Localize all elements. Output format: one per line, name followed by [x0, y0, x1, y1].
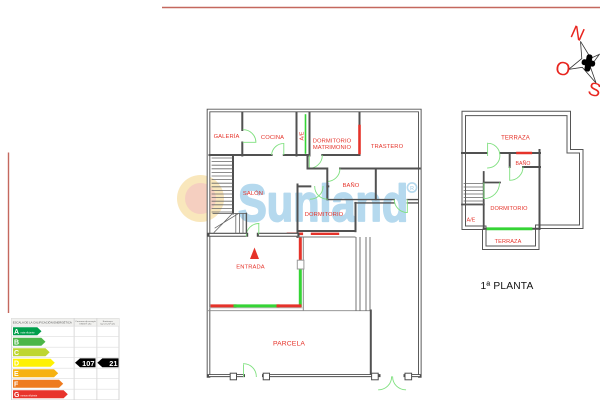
- svg-text:F: F: [14, 382, 19, 389]
- svg-text:A/E: A/E: [300, 131, 306, 140]
- svg-text:A/E: A/E: [467, 218, 476, 224]
- svg-text:COCINA: COCINA: [261, 135, 284, 141]
- svg-text:Sunland: Sunland: [238, 175, 408, 233]
- svg-text:ESCALA DE LA CALIFICACIÓN ENER: ESCALA DE LA CALIFICACIÓN ENERGÉTICA: [13, 319, 72, 324]
- svg-text:C: C: [14, 350, 19, 357]
- svg-text:107: 107: [82, 359, 94, 368]
- svg-text:kg CO₂/m² año: kg CO₂/m² año: [101, 322, 116, 325]
- svg-text:B: B: [14, 340, 19, 347]
- svg-text:E: E: [14, 371, 19, 378]
- svg-text:1ª PLANTA: 1ª PLANTA: [481, 281, 534, 292]
- svg-text:A: A: [14, 329, 19, 336]
- svg-text:DORMITORIO: DORMITORIO: [490, 206, 528, 212]
- svg-text:Consumo de energía: Consumo de energía: [75, 320, 96, 323]
- svg-text:GALERÍA: GALERÍA: [214, 133, 240, 140]
- svg-text:SALÓN: SALÓN: [243, 190, 263, 197]
- svg-text:D: D: [14, 361, 19, 368]
- svg-text:TERRAZA: TERRAZA: [501, 135, 530, 141]
- svg-text:TRASTERO: TRASTERO: [371, 144, 404, 150]
- svg-text:TERRAZA: TERRAZA: [495, 239, 522, 245]
- svg-text:menos eficiente: menos eficiente: [21, 395, 38, 398]
- svg-text:kWh/m² año: kWh/m² año: [80, 322, 93, 325]
- svg-text:BAÑO: BAÑO: [515, 160, 530, 167]
- svg-text:DORMITORIO: DORMITORIO: [313, 139, 352, 145]
- svg-text:más eficiente: más eficiente: [21, 332, 36, 335]
- svg-text:PARCELA: PARCELA: [273, 340, 305, 347]
- svg-text:ENTRADA: ENTRADA: [236, 264, 264, 270]
- svg-text:BAÑO: BAÑO: [343, 182, 360, 189]
- svg-text:MATRIMONIO: MATRIMONIO: [313, 145, 352, 151]
- svg-text:G: G: [14, 392, 20, 399]
- svg-text:DORMITORIO: DORMITORIO: [305, 212, 344, 218]
- svg-text:O: O: [554, 58, 572, 81]
- svg-text:R: R: [410, 186, 414, 192]
- svg-text:21: 21: [109, 359, 117, 368]
